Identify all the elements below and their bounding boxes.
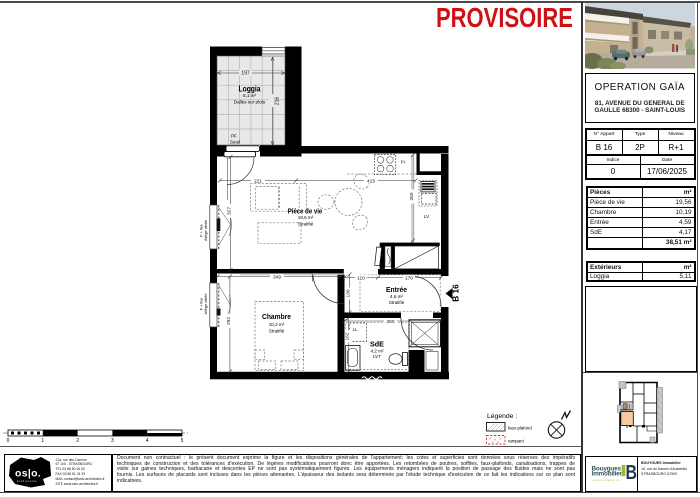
svg-text:415: 415: [367, 178, 375, 184]
svg-text:0: 0: [7, 438, 10, 444]
svg-text:faux-plafond: faux-plafond: [508, 426, 532, 431]
svg-text:LL: LL: [353, 327, 358, 332]
svg-text:5: 5: [181, 438, 184, 444]
svg-text:Fr: Fr: [401, 160, 406, 165]
svg-text:Chambre: Chambre: [262, 312, 291, 321]
svg-text:5,1 m²: 5,1 m²: [243, 93, 256, 98]
svg-text:Légende :: Légende :: [487, 413, 517, 420]
svg-text:292: 292: [226, 317, 232, 325]
svg-text:Stratifié: Stratifié: [269, 329, 285, 334]
svg-text:B: B: [625, 459, 637, 482]
svg-text:Dalles sur plots: Dalles sur plots: [234, 100, 266, 105]
svg-text:19,6 m²: 19,6 m²: [298, 215, 314, 220]
svg-text:162: 162: [345, 332, 351, 340]
svg-text:4,2 m²: 4,2 m²: [370, 349, 383, 354]
svg-text:221: 221: [254, 178, 262, 184]
svg-text:349: 349: [273, 274, 281, 280]
svg-text:2: 2: [76, 438, 79, 444]
svg-text:architectes: architectes: [17, 480, 37, 483]
svg-text:SdE: SdE: [370, 340, 384, 349]
svg-text:Allège vitrée: Allège vitrée: [204, 294, 208, 315]
svg-text:Allège vitrée: Allège vitrée: [204, 220, 208, 241]
svg-text:130: 130: [346, 289, 352, 297]
svg-text:110: 110: [357, 275, 365, 281]
svg-text:Stratifié: Stratifié: [389, 300, 405, 305]
svg-text:os|o.: os|o.: [15, 468, 41, 480]
svg-text:Immobilier: Immobilier: [591, 470, 622, 477]
svg-text:Entrée: Entrée: [386, 287, 407, 294]
svg-text:rampant: rampant: [508, 439, 525, 444]
svg-text:260: 260: [409, 192, 415, 200]
svg-text:1: 1: [41, 438, 44, 444]
svg-text:327: 327: [227, 207, 233, 215]
svg-text:B 16: B 16: [451, 284, 461, 302]
svg-text:216: 216: [275, 97, 281, 106]
svg-text:10,2 m²: 10,2 m²: [269, 322, 285, 327]
svg-text:170: 170: [405, 275, 413, 281]
svg-text:197: 197: [241, 71, 250, 77]
svg-text:4: 4: [146, 438, 149, 444]
svg-text:260: 260: [386, 319, 394, 325]
svg-text:F + fixe: F + fixe: [200, 224, 204, 237]
svg-text:LVT: LVT: [373, 354, 381, 359]
svg-text:LA VIE S'INVENTE ICI: LA VIE S'INVENTE ICI: [591, 478, 619, 481]
svg-text:4,6 m²: 4,6 m²: [390, 294, 403, 299]
svg-text:3: 3: [111, 438, 114, 444]
svg-text:LV: LV: [424, 214, 429, 219]
svg-text:PF: PF: [231, 134, 237, 139]
svg-text:F + fixe: F + fixe: [200, 298, 204, 311]
svg-text:Stratifié: Stratifié: [298, 222, 314, 227]
svg-text:Seuil: Seuil: [230, 140, 240, 145]
